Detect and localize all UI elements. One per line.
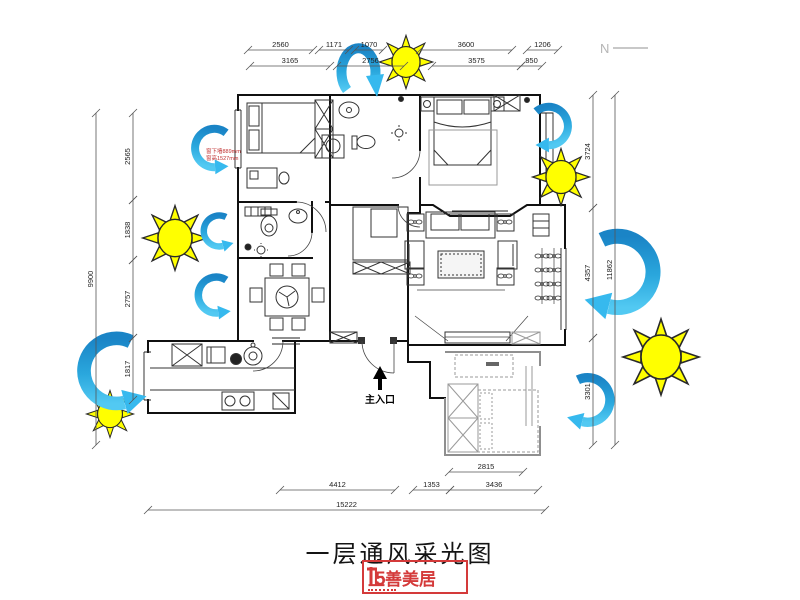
sun-icon (143, 206, 208, 271)
svg-text:窗下墙889mm: 窗下墙889mm (206, 147, 241, 155)
dim-label: 850 (525, 56, 538, 65)
dim-label: 1838 (123, 222, 132, 239)
dim-label: 15222 (336, 500, 357, 509)
window-annotation: 窗下墙889mm 窗高1527mm (206, 147, 241, 162)
svg-text:窗高1527mm: 窗高1527mm (206, 154, 239, 162)
dim-label: 11862 (605, 260, 614, 280)
furniture-living-room (405, 212, 561, 343)
dim-label: 1353 (423, 480, 440, 489)
logo-subtext-line (368, 589, 396, 591)
wind-arrow-icon (195, 275, 235, 321)
dim-label: 1171 (326, 40, 342, 49)
sun-icon (379, 35, 432, 88)
entrance-marker: 主入口 (365, 366, 395, 406)
logo-mark-icon: 5 (364, 562, 390, 590)
dim-label: 1070 (361, 40, 378, 49)
company-logo: 5 上善美居 (362, 560, 468, 594)
furniture-bathroom-west (245, 207, 307, 257)
dim-label: 2815 (478, 462, 495, 471)
furniture-dining-room (250, 264, 324, 330)
dim-label: 2560 (272, 40, 289, 49)
dim-label: 3575 (468, 56, 485, 65)
entrance-label: 主入口 (365, 393, 395, 406)
dim-label: 1206 (534, 40, 551, 49)
window-southeast (526, 366, 532, 426)
dim-label: 2757 (123, 291, 132, 308)
furniture-bedroom-northwest (247, 100, 333, 188)
drawing-canvas: 主入口 窗下墙889mm 窗高1527mm N 2560117110703600… (0, 0, 800, 600)
north-label: N (600, 41, 609, 56)
floor-plan-svg: 主入口 窗下墙889mm 窗高1527mm N 2560117110703600… (0, 0, 800, 600)
furniture-bathroom-north (322, 97, 407, 159)
furniture-kitchen (150, 343, 295, 410)
dim-label: 3301 (583, 383, 592, 400)
dim-label: 4412 (329, 480, 346, 489)
entrance-arrow-icon (373, 366, 387, 390)
furniture-bedroom-southeast (330, 332, 540, 452)
dim-label: 3724 (583, 143, 592, 160)
north-indicator: N (600, 41, 648, 56)
sun-icon (623, 319, 699, 395)
sun-icon (533, 149, 590, 206)
dim-label: 4357 (583, 265, 592, 282)
dim-label: 2565 (123, 148, 132, 165)
wind-arrow-icon (585, 236, 653, 319)
dim-label: 2756 (362, 56, 379, 65)
furniture-bedroom-master (421, 95, 530, 185)
dim-label: 1817 (123, 361, 132, 378)
wind-arrow-icon (204, 215, 234, 251)
wind-arrow-icon (84, 338, 146, 414)
dim-label: 3165 (282, 56, 299, 65)
wind-arrow-icon (527, 102, 574, 155)
dim-label: 3436 (486, 480, 503, 489)
dim-label: 3600 (458, 40, 475, 49)
dim-label: 9900 (86, 271, 95, 288)
svg-text:5: 5 (375, 569, 386, 590)
